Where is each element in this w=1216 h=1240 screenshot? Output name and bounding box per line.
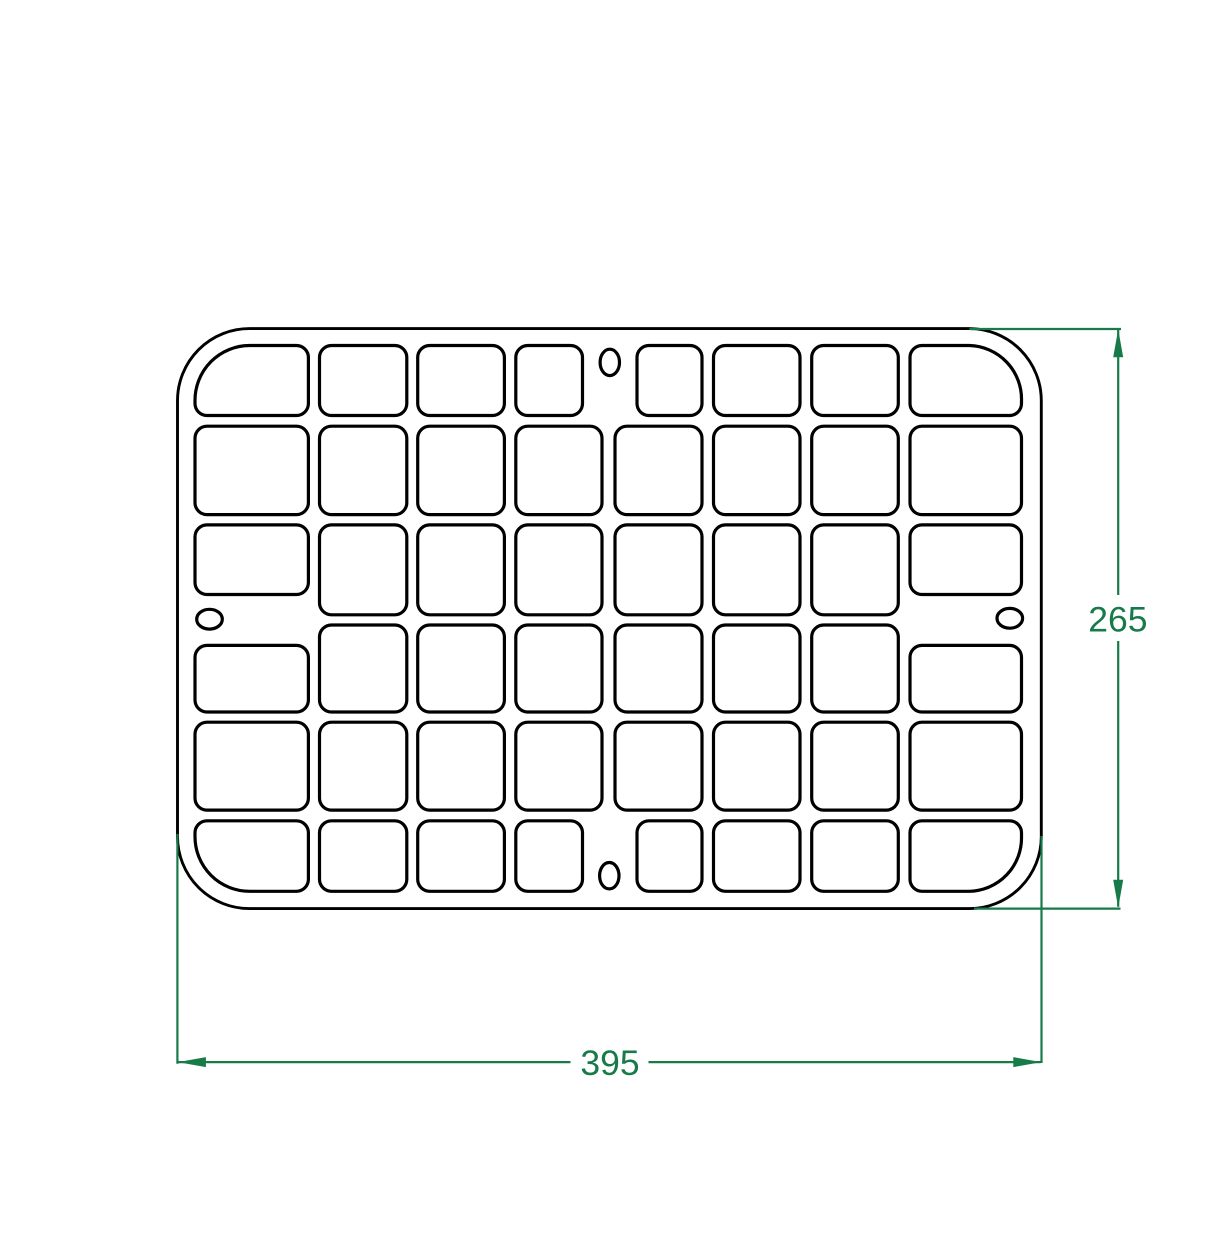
svg-text:265: 265: [1088, 600, 1147, 640]
svg-text:395: 395: [580, 1043, 639, 1083]
